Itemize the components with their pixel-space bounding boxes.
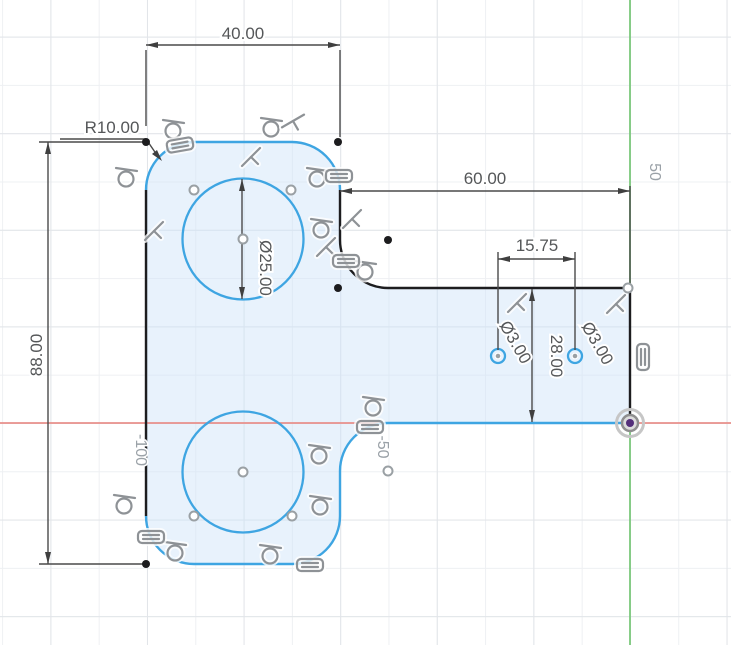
origin-center-dot	[626, 419, 634, 427]
sketch-point[interactable]	[288, 512, 297, 521]
x-axis-label-neg50: -50	[374, 435, 391, 458]
equal-constraint-icon[interactable]	[297, 559, 323, 571]
dim-text-r10[interactable]: R10.00	[85, 118, 140, 137]
equal-constraint-icon[interactable]	[333, 255, 359, 267]
equal-constraint-icon[interactable]	[166, 137, 194, 153]
sketch-point[interactable]	[624, 284, 633, 293]
sketch-point-fixed[interactable]	[384, 236, 392, 244]
dim-text-40[interactable]: 40.00	[222, 24, 265, 43]
sketch-point-fixed[interactable]	[334, 138, 342, 146]
equal-constraint-icon[interactable]	[138, 531, 164, 543]
hole-center-point[interactable]	[495, 353, 501, 359]
sketch-svg: 40.00 R10.00 60.00 15.75 88.00 28.00	[0, 0, 731, 645]
perpendicular-constraint-icon[interactable]	[343, 210, 361, 228]
equal-constraint-icon[interactable]	[326, 170, 352, 182]
dim-text-1575[interactable]: 15.75	[516, 236, 559, 255]
equal-constraint-icon[interactable]	[357, 421, 383, 433]
equal-constraint-icon[interactable]	[637, 344, 649, 370]
y-axis-label-50: 50	[646, 163, 663, 181]
sketch-point-fixed[interactable]	[334, 284, 342, 292]
sketch-point-fixed[interactable]	[142, 560, 150, 568]
sketch-point-fixed[interactable]	[142, 138, 150, 146]
sketch-point[interactable]	[239, 235, 248, 244]
dim-text-88[interactable]: 88.00	[27, 334, 46, 377]
sketch-point[interactable]	[384, 467, 393, 476]
perpendicular-constraint-icon[interactable]	[282, 110, 304, 132]
dim-text-o25[interactable]: Ø25.00	[256, 240, 275, 296]
sketch-point[interactable]	[190, 512, 199, 521]
dimension-arm-length[interactable]: 60.00	[340, 169, 630, 284]
hole-center-point[interactable]	[572, 353, 578, 359]
tangent-constraint-icon[interactable]	[261, 118, 282, 137]
dim-text-28[interactable]: 28.00	[547, 335, 566, 378]
dim-text-60[interactable]: 60.00	[464, 169, 507, 188]
tangent-constraint-icon[interactable]	[114, 495, 135, 514]
tangent-constraint-icon[interactable]	[116, 168, 137, 187]
sketch-point[interactable]	[287, 186, 296, 195]
sketch-canvas[interactable]: 40.00 R10.00 60.00 15.75 88.00 28.00	[0, 0, 731, 645]
sketch-point[interactable]	[190, 186, 199, 195]
x-axis-label-neg100: -100	[132, 434, 149, 466]
sketch-point[interactable]	[239, 468, 248, 477]
